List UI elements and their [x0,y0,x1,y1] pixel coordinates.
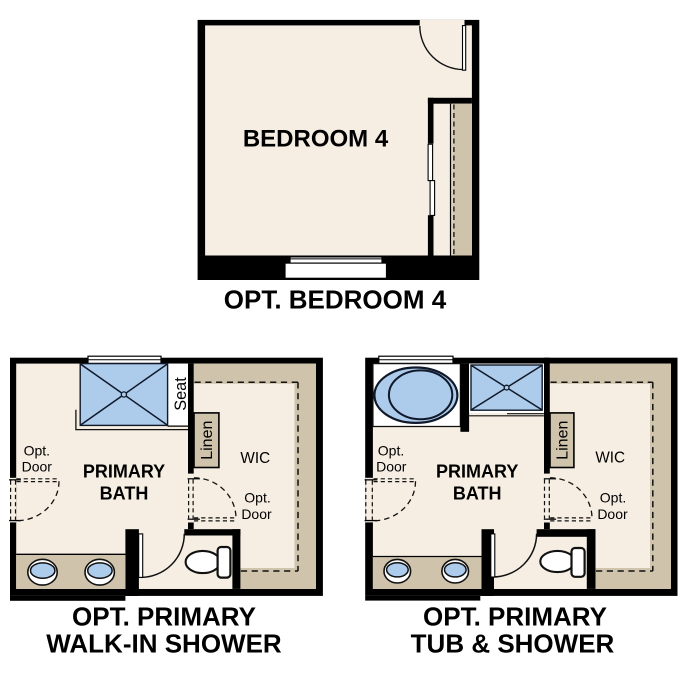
svg-text:Linen: Linen [555,421,572,460]
svg-text:TUB & SHOWER: TUB & SHOWER [411,628,615,658]
svg-text:Door: Door [22,458,53,474]
svg-text:Door: Door [376,458,407,474]
svg-text:Door: Door [241,506,272,522]
svg-text:BATH: BATH [453,484,502,504]
svg-text:Opt.: Opt. [600,490,626,506]
svg-text:OPT. PRIMARY: OPT. PRIMARY [72,601,256,631]
svg-text:PRIMARY: PRIMARY [436,461,518,481]
svg-text:Opt.: Opt. [244,490,270,506]
svg-text:Door: Door [597,506,628,522]
svg-text:WALK-IN SHOWER: WALK-IN SHOWER [46,628,282,658]
svg-text:BATH: BATH [100,484,149,504]
svg-text:PRIMARY: PRIMARY [83,461,165,481]
svg-text:Seat: Seat [172,377,190,411]
svg-text:OPT. BEDROOM 4: OPT. BEDROOM 4 [224,285,447,315]
svg-text:Opt.: Opt. [378,442,404,458]
svg-text:Linen: Linen [199,421,216,460]
svg-text:WIC: WIC [595,450,625,467]
svg-text:WIC: WIC [240,450,270,467]
svg-text:BEDROOM 4: BEDROOM 4 [243,126,389,153]
svg-text:OPT. PRIMARY: OPT. PRIMARY [423,601,607,631]
svg-text:Opt.: Opt. [24,442,50,458]
